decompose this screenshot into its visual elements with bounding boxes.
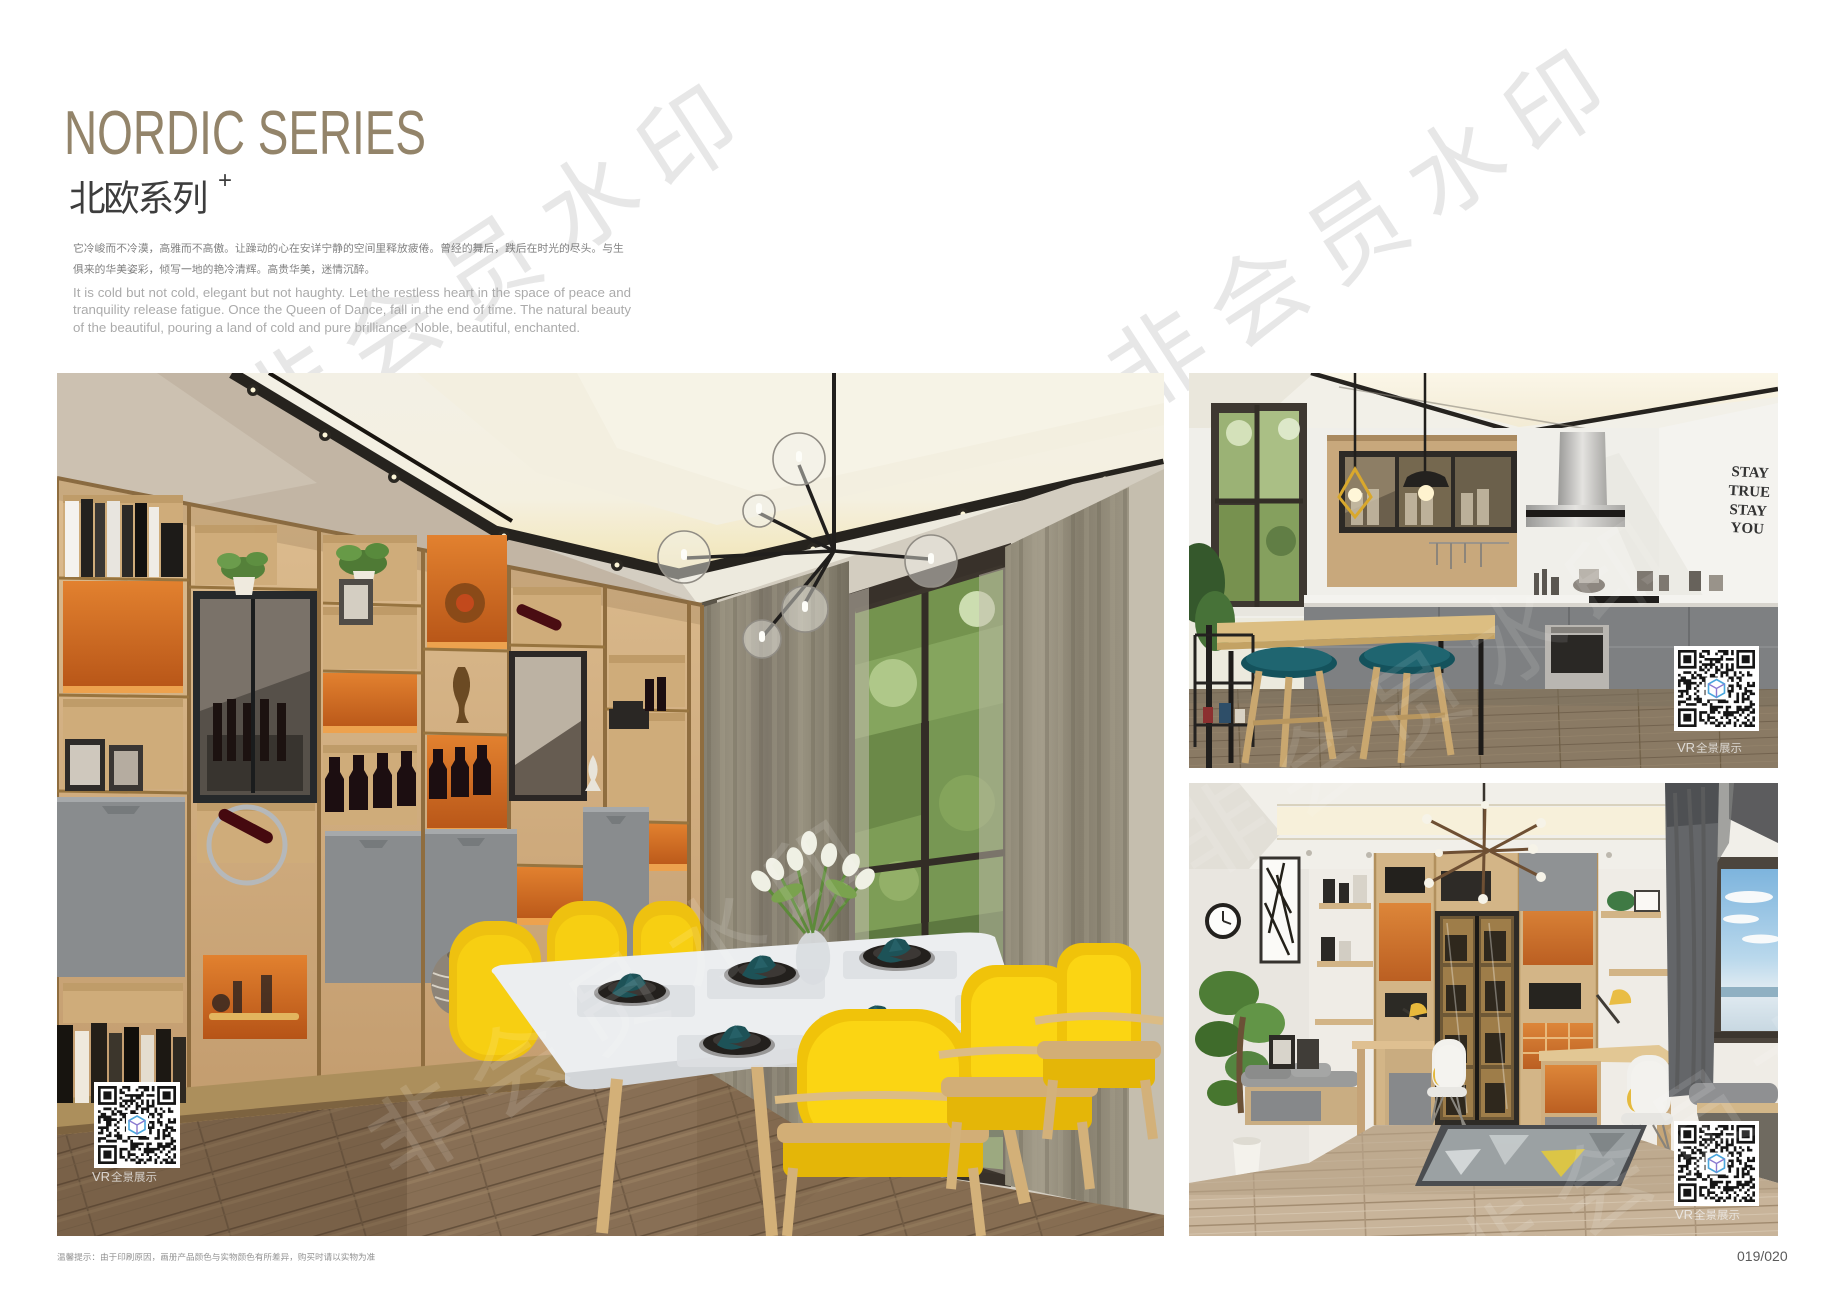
svg-text:VR: VR — [1675, 1207, 1693, 1222]
svg-text:VR: VR — [92, 1169, 110, 1184]
svg-text:TRUE: TRUE — [1728, 483, 1770, 501]
svg-text:STAY: STAY — [1731, 464, 1769, 482]
svg-text:+: + — [218, 167, 232, 194]
svg-text:VR: VR — [1677, 740, 1695, 755]
svg-text:STAY: STAY — [1729, 502, 1767, 520]
svg-text:YOU: YOU — [1730, 520, 1764, 538]
